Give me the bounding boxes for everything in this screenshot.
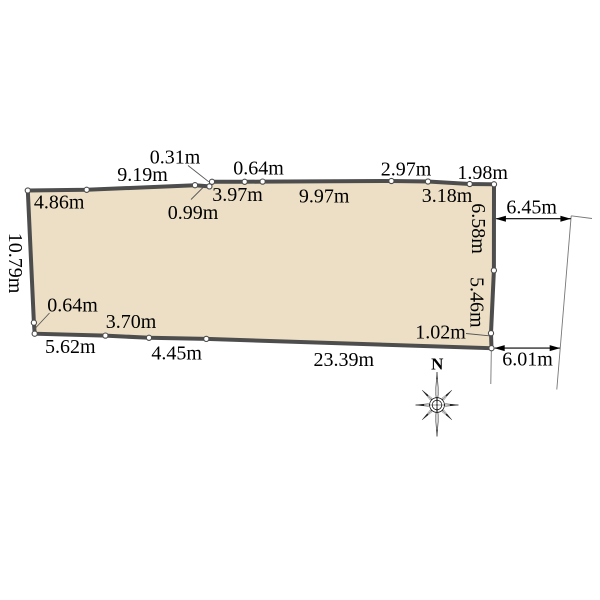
- svg-text:3.70m: 3.70m: [106, 311, 157, 333]
- svg-text:0.64m: 0.64m: [233, 158, 284, 180]
- svg-text:0.99m: 0.99m: [168, 202, 219, 224]
- svg-text:1.98m: 1.98m: [457, 162, 508, 184]
- svg-text:1.02m: 1.02m: [415, 321, 466, 343]
- svg-text:4.45m: 4.45m: [151, 343, 202, 365]
- svg-text:3.97m: 3.97m: [212, 184, 263, 206]
- svg-text:4.86m: 4.86m: [34, 192, 85, 214]
- svg-text:23.39m: 23.39m: [314, 349, 375, 371]
- svg-text:10.79m: 10.79m: [4, 233, 26, 294]
- svg-text:6.01m: 6.01m: [502, 348, 553, 370]
- svg-text:2.97m: 2.97m: [381, 159, 432, 181]
- svg-text:3.18m: 3.18m: [422, 185, 473, 207]
- svg-text:6.58m: 6.58m: [467, 203, 489, 254]
- svg-text:9.97m: 9.97m: [299, 186, 350, 208]
- svg-text:5.46m: 5.46m: [465, 277, 487, 328]
- svg-text:5.62m: 5.62m: [45, 336, 96, 358]
- svg-text:N: N: [431, 355, 444, 374]
- svg-text:0.64m: 0.64m: [47, 295, 98, 317]
- svg-text:6.45m: 6.45m: [506, 196, 557, 218]
- svg-text:9.19m: 9.19m: [117, 164, 168, 186]
